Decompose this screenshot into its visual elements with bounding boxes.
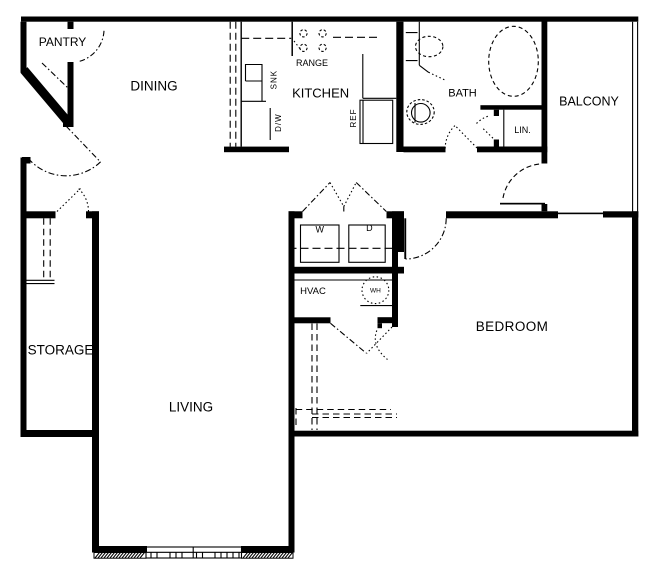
svg-text:RANGE: RANGE (296, 58, 328, 68)
svg-text:SNK: SNK (270, 70, 279, 89)
svg-text:D/W: D/W (274, 113, 283, 132)
svg-text:LIN.: LIN. (514, 125, 531, 135)
svg-text:KITCHEN: KITCHEN (292, 86, 349, 101)
svg-text:DINING: DINING (130, 79, 177, 94)
svg-text:STORAGE: STORAGE (28, 343, 94, 358)
svg-text:BATH: BATH (448, 88, 477, 100)
svg-text:BALCONY: BALCONY (559, 94, 619, 108)
svg-text:REF: REF (349, 109, 358, 128)
svg-text:LIVING: LIVING (169, 399, 213, 414)
svg-text:HVAC: HVAC (300, 286, 326, 297)
svg-text:W: W (316, 224, 325, 234)
svg-text:BEDROOM: BEDROOM (476, 319, 549, 334)
svg-text:WH: WH (370, 288, 381, 295)
svg-text:PANTRY: PANTRY (39, 35, 87, 49)
svg-text:D: D (366, 223, 373, 233)
